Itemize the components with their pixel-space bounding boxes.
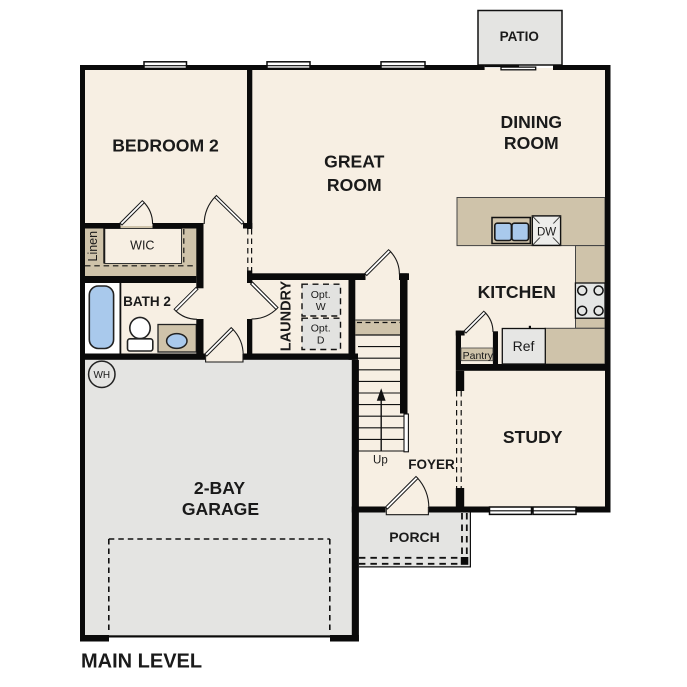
svg-text:WH: WH [93, 370, 110, 381]
svg-text:DINING: DINING [501, 112, 563, 132]
svg-text:Pantry: Pantry [463, 350, 494, 362]
svg-text:PATIO: PATIO [500, 29, 539, 44]
svg-text:W: W [316, 301, 326, 313]
svg-text:Opt.: Opt. [311, 289, 331, 301]
svg-text:D: D [317, 335, 325, 347]
svg-text:ROOM: ROOM [327, 175, 382, 195]
svg-text:WIC: WIC [130, 238, 154, 252]
svg-text:BEDROOM 2: BEDROOM 2 [112, 135, 219, 155]
svg-text:Up: Up [373, 455, 388, 467]
svg-text:ROOM: ROOM [504, 133, 559, 153]
svg-text:Ref: Ref [513, 338, 535, 354]
svg-text:BATH 2: BATH 2 [123, 294, 171, 309]
svg-text:DW: DW [537, 226, 556, 238]
svg-text:FOYER: FOYER [408, 457, 455, 472]
svg-text:MAIN LEVEL: MAIN LEVEL [81, 651, 202, 673]
svg-text:GARAGE: GARAGE [182, 499, 259, 519]
svg-text:STUDY: STUDY [503, 427, 563, 447]
svg-text:KITCHEN: KITCHEN [478, 282, 556, 302]
svg-text:Opt.: Opt. [311, 323, 331, 335]
svg-text:GREAT: GREAT [324, 151, 385, 171]
svg-text:2-BAY: 2-BAY [194, 478, 245, 498]
svg-text:Linen: Linen [86, 231, 100, 262]
svg-text:LAUNDRY: LAUNDRY [279, 281, 295, 352]
svg-text:PORCH: PORCH [389, 529, 440, 545]
